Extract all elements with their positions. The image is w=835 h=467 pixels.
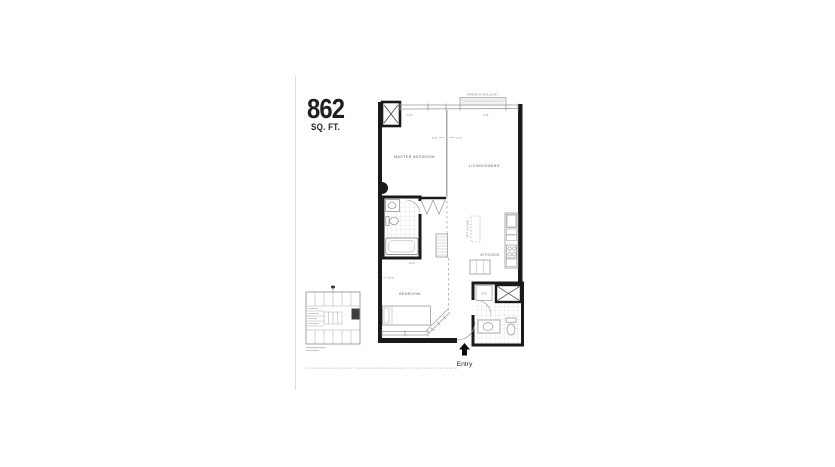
sqft-number: 862 (307, 92, 345, 124)
bathroom-sink-icon (483, 323, 493, 331)
bedroom-dimension-group: 10'0" (383, 276, 394, 280)
key-plan (306, 286, 360, 352)
floorplan-scan-page: 862 SQ. FT. (0, 0, 835, 467)
master-bedroom-label: MASTER BEDROOM (394, 155, 435, 159)
living-dining-label: LIVING/DINING (469, 164, 500, 168)
floorplan-drawing: 862 SQ. FT. (0, 0, 835, 467)
laundry-closet-icon (496, 285, 521, 302)
washer-dryer-label: W/D (481, 292, 487, 296)
entry-marker: Entry (457, 343, 473, 368)
master-dimension: 17'0" (432, 136, 438, 140)
master-closet (420, 198, 446, 214)
fine-print: All dimensions are approximate. Sizes an… (306, 366, 458, 370)
island-label: OPT. ISLAND (466, 220, 470, 238)
main-bathroom: W/D (472, 283, 523, 345)
french-balcony-label: FRENCH BALCONY (467, 93, 499, 97)
north-marker-icon (331, 286, 335, 289)
stove-icon (506, 245, 516, 258)
bedroom-label: BEDROOM (399, 292, 421, 296)
balcony-dimension: 17'8" (483, 113, 489, 117)
key-plan-unit-highlight (352, 309, 360, 320)
fridge-icon (506, 215, 516, 228)
kitchen-island: OPT. ISLAND (466, 216, 481, 242)
hall-closet-shelves (436, 234, 448, 257)
hall-dimension: 12'2" (409, 261, 415, 265)
sqft-unit: SQ. FT. (311, 121, 340, 132)
french-balcony: FRENCH BALCONY 17'8" (460, 93, 506, 118)
title-block: 862 SQ. FT. (307, 92, 345, 132)
kitchen-peninsula (470, 260, 490, 274)
room-partition: 17'0" 17'0" (432, 110, 463, 310)
ensuite-toilet-icon (386, 217, 399, 226)
bathroom-toilet-icon (506, 318, 516, 335)
bedroom-window-band (382, 330, 428, 337)
living-dimension: 17'0" (456, 136, 462, 140)
entry-label: Entry (457, 361, 473, 368)
ensuite-bathtub-icon (386, 238, 418, 255)
unit-plan: FRENCH BALCONY 17'8" 14'2" 17'0" 17'0" M… (378, 93, 523, 369)
ensuite-bathroom (383, 197, 423, 258)
ensuite-sink-icon (388, 203, 396, 209)
kitchen-counters (505, 213, 518, 268)
bed-icon (383, 306, 431, 325)
column-bump (382, 182, 388, 194)
bedroom-dimension: 10'0" (388, 276, 394, 280)
corner-shaft-icon (382, 102, 400, 126)
top-left-dimension: 14'2" (407, 113, 413, 117)
kitchen-label: KITCHEN (481, 253, 500, 257)
entry-arrow-icon (459, 343, 470, 356)
